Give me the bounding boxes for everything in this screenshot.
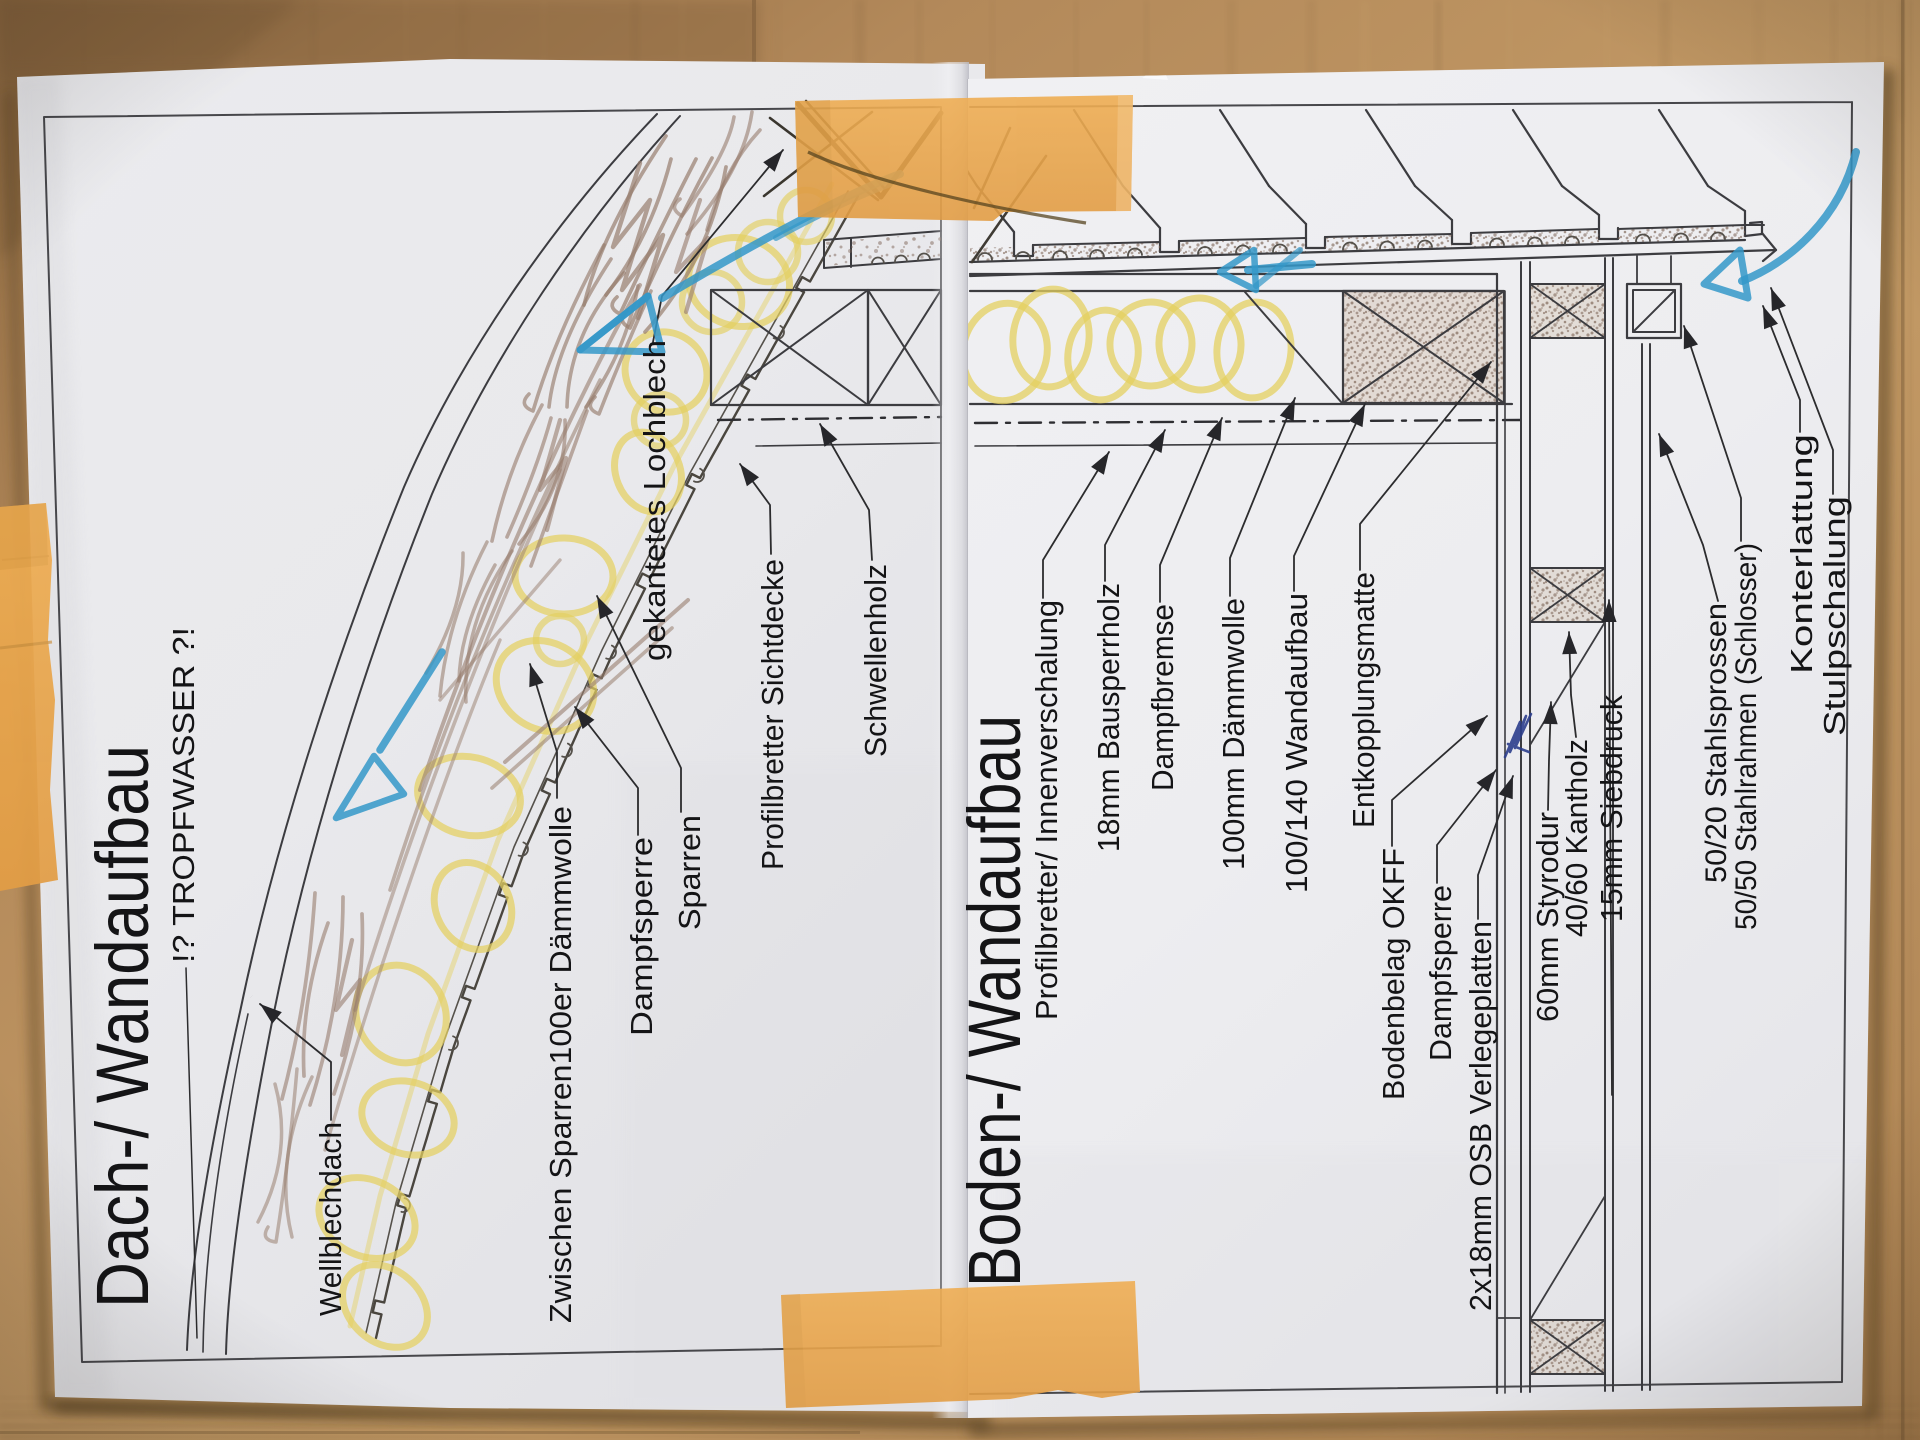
svg-text:18mm Bausperrholz: 18mm Bausperrholz	[1091, 583, 1126, 852]
svg-text:Bodenbelag OKFF: Bodenbelag OKFF	[1376, 848, 1411, 1100]
svg-text:Entkopplungsmatte: Entkopplungsmatte	[1346, 572, 1381, 828]
svg-text:50/50 Stahlrahmen (Schlosser): 50/50 Stahlrahmen (Schlosser)	[1730, 543, 1763, 930]
svg-text:100mm Dämmwolle: 100mm Dämmwolle	[1216, 598, 1251, 870]
svg-text:2x18mm OSB Verlegeplatten: 2x18mm OSB Verlegeplatten	[1463, 921, 1498, 1311]
svg-text:40/60 Kantholz: 40/60 Kantholz	[1559, 739, 1594, 937]
svg-text:100/140 Wandaufbau: 100/140 Wandaufbau	[1279, 593, 1314, 893]
svg-text:gekantetes Lochblech: gekantetes Lochblech	[637, 340, 672, 661]
svg-text:Stulpschalung: Stulpschalung	[1817, 496, 1852, 736]
svg-text:Profilbretter Sichtdecke: Profilbretter Sichtdecke	[755, 559, 790, 870]
svg-text:Profilbretter/ Innenverschalun: Profilbretter/ Innenverschalung	[1029, 600, 1064, 1020]
svg-text:Schwellenholz: Schwellenholz	[858, 564, 893, 757]
svg-text:Wellblechdach: Wellblechdach	[313, 1122, 348, 1316]
svg-text:Zwischen Sparren100er Dämmwoll: Zwischen Sparren100er Dämmwolle	[543, 806, 578, 1323]
svg-text:Dampfbremse: Dampfbremse	[1145, 604, 1180, 791]
svg-text:Dampfsperre: Dampfsperre	[624, 837, 659, 1036]
svg-text:15mm Siebdruck: 15mm Siebdruck	[1594, 695, 1629, 922]
svg-text:Dampfsperre: Dampfsperre	[1423, 885, 1458, 1061]
svg-text:Sparren: Sparren	[672, 815, 707, 930]
svg-text:!? TROPFWASSER ?!: !? TROPFWASSER ?!	[166, 627, 201, 963]
svg-text:Boden-/ Wandaufbau: Boden-/ Wandaufbau	[953, 715, 1036, 1287]
svg-text:Konterlattung: Konterlattung	[1784, 434, 1819, 674]
svg-text:50/20 Stahlsprossen: 50/20 Stahlsprossen	[1700, 603, 1733, 883]
svg-text:Dach-/ Wandaufbau: Dach-/ Wandaufbau	[81, 745, 164, 1308]
